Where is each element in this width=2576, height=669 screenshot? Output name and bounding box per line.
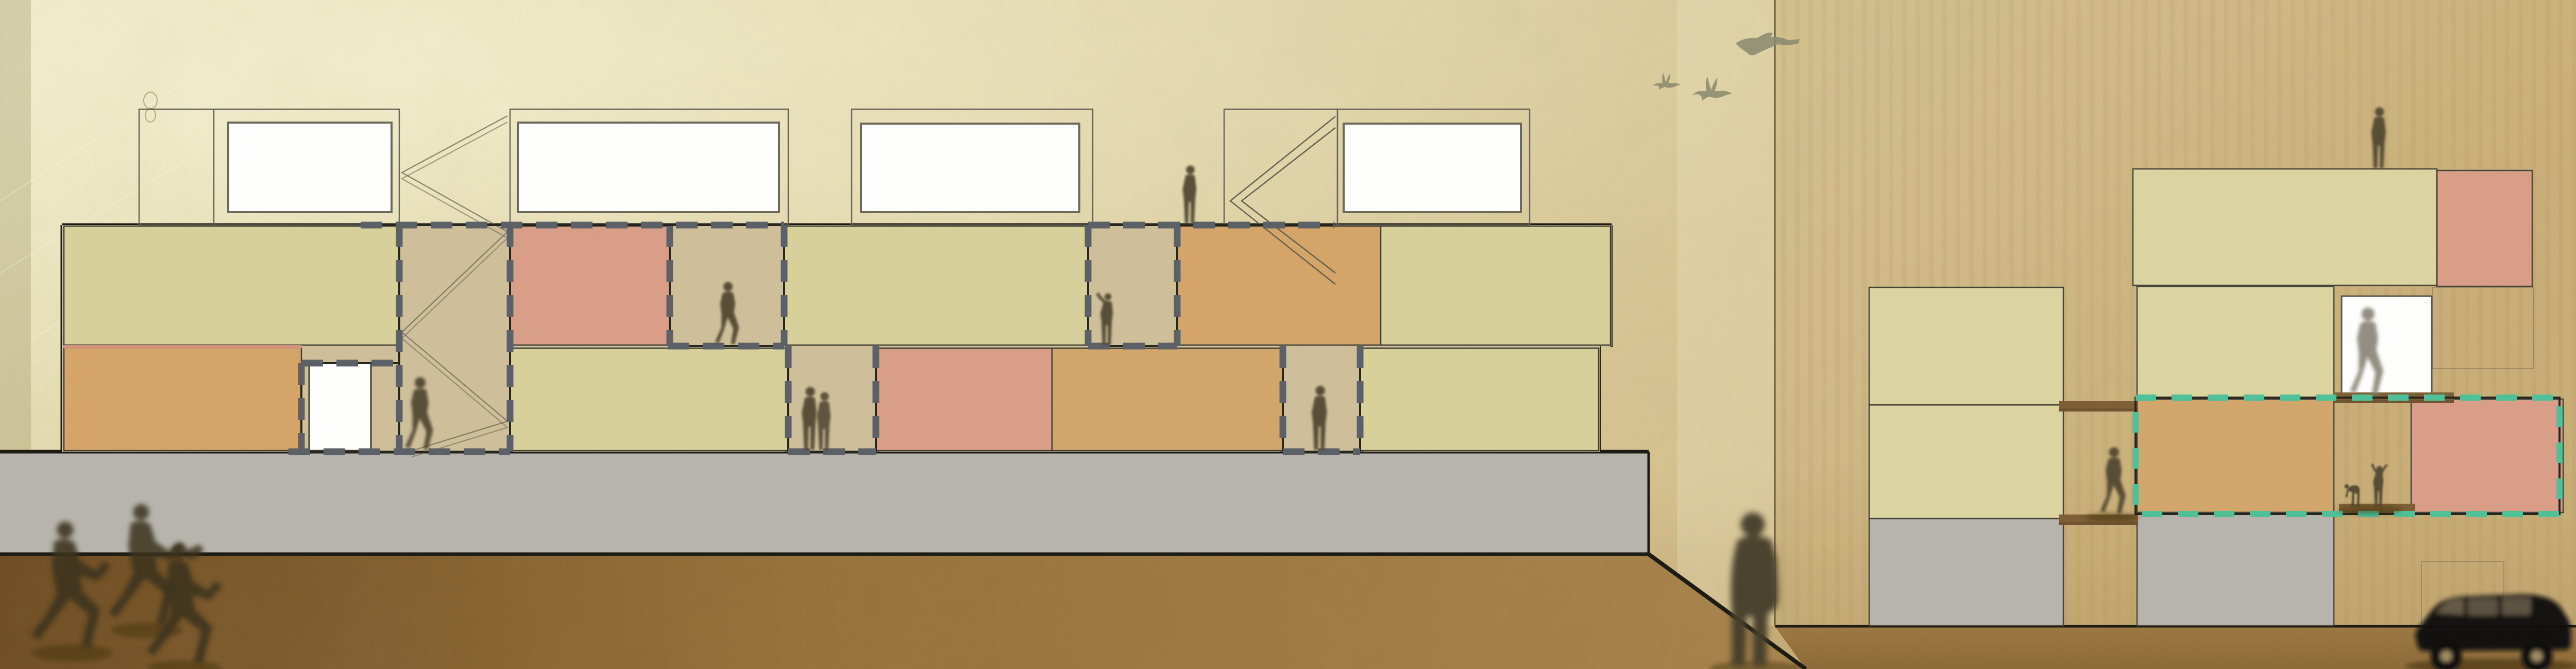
architectural-section-illustration xyxy=(0,0,2576,669)
paper-grain-overlay xyxy=(0,0,2576,669)
scene-canvas xyxy=(0,0,2576,669)
